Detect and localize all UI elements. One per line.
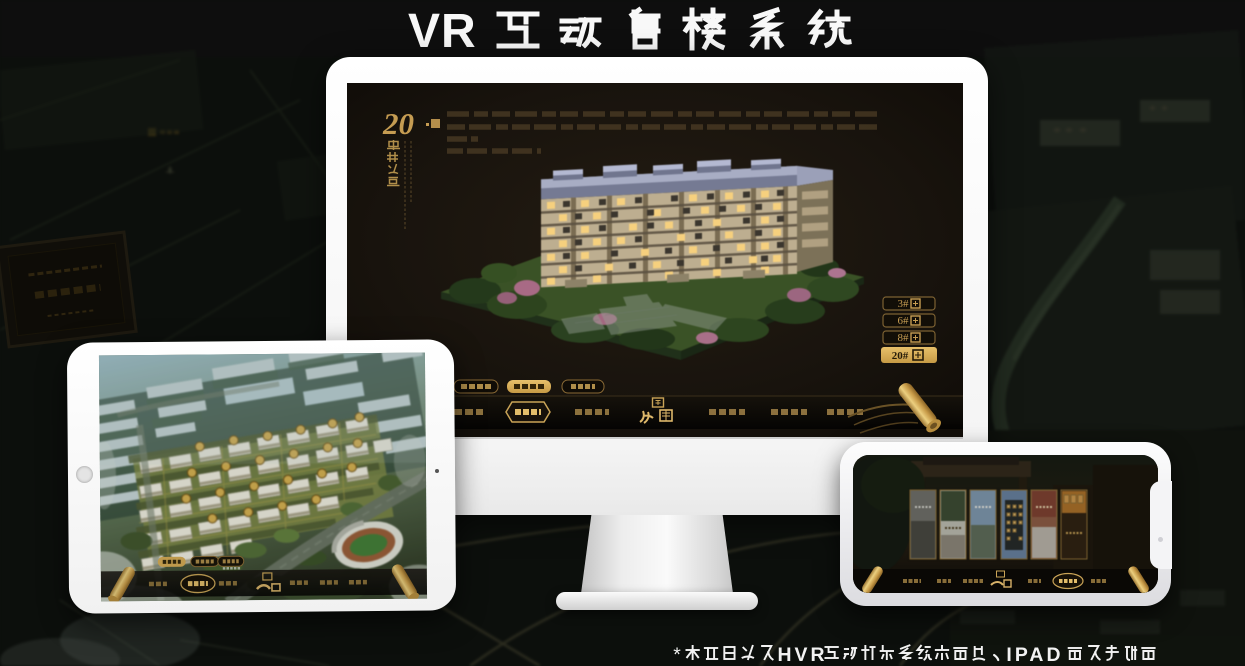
- svg-text:IPAD: IPAD: [1006, 645, 1063, 666]
- svg-text:20: 20: [382, 106, 414, 141]
- svg-text:VR: VR: [408, 5, 477, 58]
- svg-text:20#: 20#: [892, 350, 909, 362]
- svg-text:8#: 8#: [898, 332, 910, 344]
- svg-text:*: *: [673, 645, 683, 666]
- svg-text:3#: 3#: [898, 298, 910, 310]
- svg-text:6#: 6#: [898, 315, 910, 327]
- svg-text:HVR: HVR: [777, 645, 827, 666]
